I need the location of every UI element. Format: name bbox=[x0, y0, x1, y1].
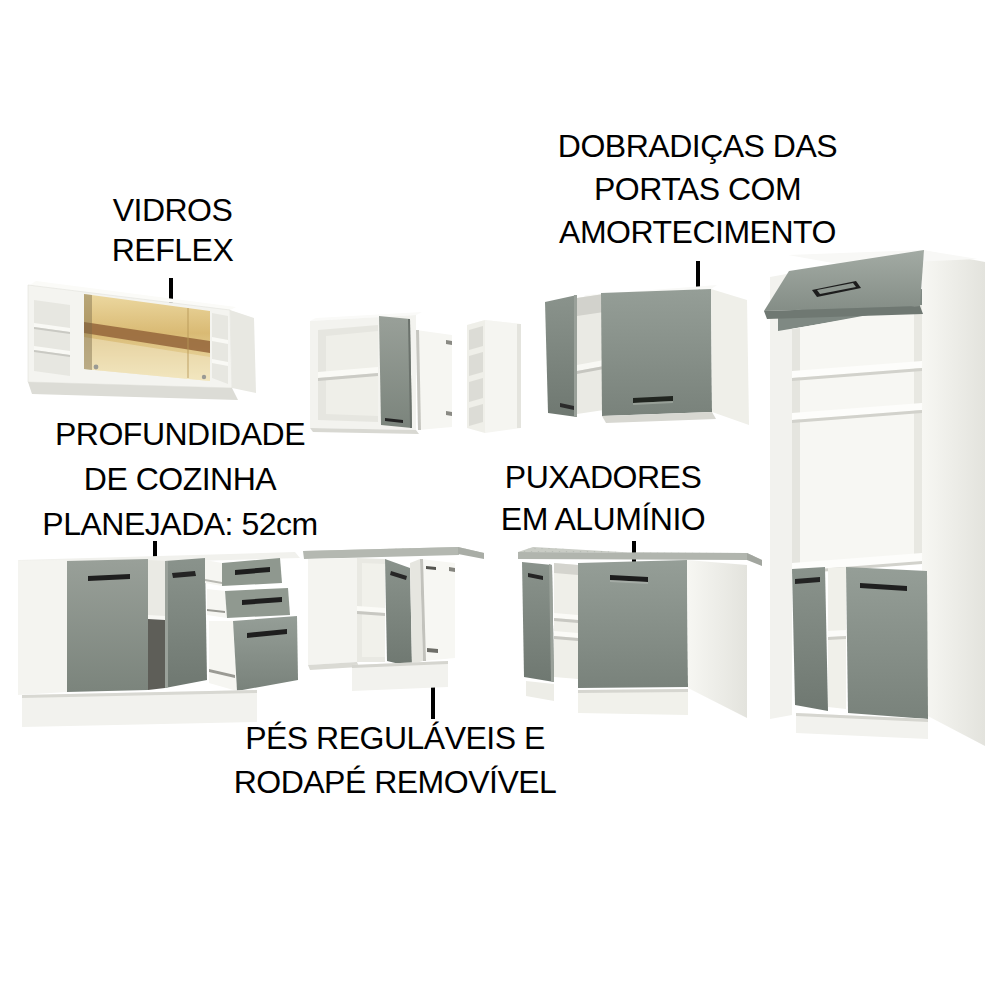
cabinet-interior bbox=[357, 558, 385, 662]
cabinet-front bbox=[485, 320, 521, 433]
shelf bbox=[828, 630, 846, 637]
glass-wall-cabinet bbox=[18, 277, 258, 407]
cabinet-interior bbox=[577, 294, 604, 414]
glass-knob bbox=[94, 365, 99, 370]
label-puxadores: PUXADORES EM ALUMÍNIO bbox=[478, 456, 728, 540]
open-grey-door bbox=[545, 295, 577, 417]
open-grey-door bbox=[385, 559, 412, 667]
closed-grey-door bbox=[67, 559, 148, 692]
open-grey-door bbox=[165, 558, 207, 688]
label-line: PUXADORES bbox=[478, 456, 728, 498]
drawer-middle bbox=[225, 588, 290, 618]
label-line: PROFUNDIDADE bbox=[25, 412, 335, 457]
angled-white-door bbox=[420, 559, 455, 661]
open-shelf-right bbox=[212, 313, 228, 384]
angled-white-door bbox=[416, 327, 455, 430]
cabinet-interior bbox=[318, 325, 378, 422]
cabinet-side bbox=[230, 310, 256, 393]
cabinet-interior bbox=[554, 563, 578, 679]
label-line: PLANEJADA: 52cm bbox=[25, 502, 335, 547]
label-line: VIDROS bbox=[40, 190, 305, 230]
drawer-top bbox=[222, 558, 282, 586]
label-line: DE COZINHA bbox=[25, 457, 335, 502]
glass-knob bbox=[202, 375, 206, 379]
lower-open-door bbox=[792, 567, 828, 711]
open-grey-door bbox=[379, 316, 412, 428]
label-line: DOBRADIÇAS DAS bbox=[540, 125, 855, 168]
open-shelf-left bbox=[34, 300, 70, 376]
label-line: EM ALUMÍNIO bbox=[478, 498, 728, 540]
plinth bbox=[578, 689, 688, 715]
open-shelves bbox=[467, 320, 485, 433]
shelf-niche bbox=[469, 378, 483, 402]
label-line: PORTAS COM bbox=[540, 168, 855, 211]
cabinet-front bbox=[308, 558, 357, 665]
countertop bbox=[303, 547, 484, 559]
open-grey-door bbox=[522, 562, 554, 682]
plinth-left bbox=[526, 681, 554, 701]
label-line: RODAPÉ REMOVÍVEL bbox=[225, 760, 565, 804]
corner-base-cabinet bbox=[300, 543, 520, 711]
cabinet-side bbox=[687, 560, 747, 718]
cabinet-side bbox=[18, 560, 67, 695]
cabinet-side bbox=[711, 289, 749, 425]
oven-niche-interior bbox=[778, 289, 922, 574]
lower-closed-door bbox=[846, 567, 928, 719]
plinth bbox=[352, 661, 448, 691]
shelf-niche bbox=[469, 352, 483, 376]
closed-grey-door bbox=[578, 560, 688, 688]
cabinet-side bbox=[922, 250, 985, 746]
label-dobradicas: DOBRADIÇAS DAS PORTAS COM AMORTECIMENTO bbox=[540, 125, 855, 254]
open-shelf-unit bbox=[462, 316, 528, 438]
label-vidros-reflex: VIDROS REFLEX bbox=[40, 190, 305, 270]
label-line: REFLEX bbox=[40, 230, 305, 270]
door-base-cabinet bbox=[516, 543, 768, 728]
product-feature-image: VIDROS REFLEX DOBRADIÇAS DAS PORTAS COM … bbox=[0, 0, 1000, 1000]
plinth bbox=[22, 690, 257, 727]
lower-interior bbox=[828, 567, 846, 709]
cabinet-interior bbox=[148, 560, 165, 690]
shelf-niche bbox=[469, 326, 483, 350]
tall-oven-cabinet bbox=[762, 243, 994, 765]
cabinet-left-stile bbox=[770, 273, 792, 719]
label-profundidade: PROFUNDIDADE DE COZINHA PLANEJADA: 52cm bbox=[25, 412, 335, 547]
closed-grey-door bbox=[601, 289, 712, 416]
drawer-base-cabinet bbox=[10, 551, 310, 731]
double-door-wall-cabinet bbox=[540, 269, 762, 432]
drawer-bottom bbox=[233, 616, 298, 691]
